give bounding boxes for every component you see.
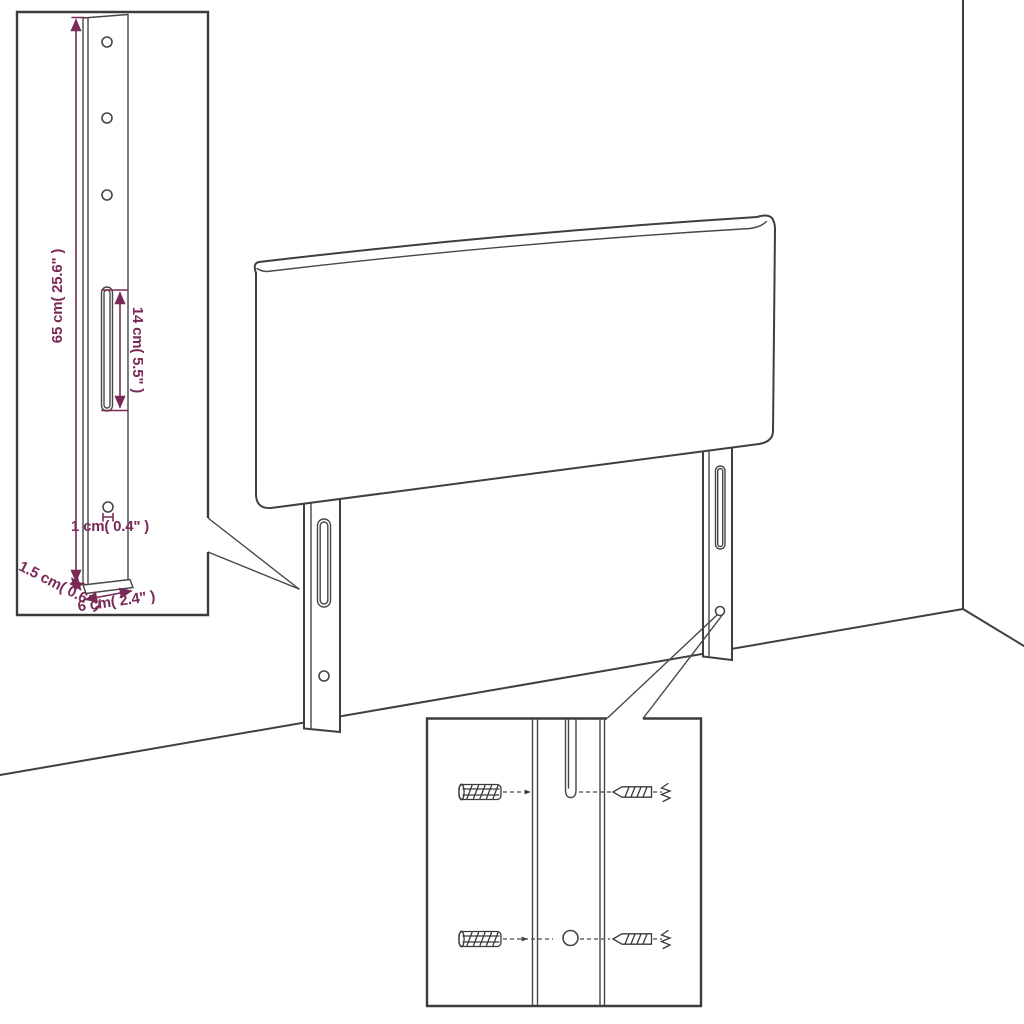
mounting-inset-frame xyxy=(427,719,701,1007)
strip-hole xyxy=(563,931,578,946)
headboard-panel xyxy=(255,216,775,509)
floor-line-right xyxy=(963,609,1024,646)
mounting-detail-inset xyxy=(427,719,701,1007)
diagram-canvas: 65 cm( 25.6" ) 14 cm( 5.5" ) 1 cm( 0.4" … xyxy=(0,0,1024,1024)
headboard-right-leg xyxy=(703,430,732,660)
headboard-left-leg xyxy=(304,480,340,732)
bracket-hole-3 xyxy=(102,190,112,200)
callout-left-inset xyxy=(208,518,299,589)
headboard-diagram: 65 cm( 25.6" ) 14 cm( 5.5" ) 1 cm( 0.4" … xyxy=(0,0,1024,1024)
dimension-hole-label: 1 cm( 0.4" ) xyxy=(71,518,149,535)
headboard-outline xyxy=(255,216,775,509)
dimension-slot-label: 14 cm( 5.5" ) xyxy=(129,307,146,393)
right-leg-hole xyxy=(716,607,725,616)
callout-line-upper xyxy=(208,518,299,589)
dimension-height-label: 65 cm( 25.6" ) xyxy=(49,249,66,344)
left-leg-hole xyxy=(319,671,329,681)
leg-detail-inset: 65 cm( 25.6" ) 14 cm( 5.5" ) 1 cm( 0.4" … xyxy=(16,12,208,615)
bracket-hole-2 xyxy=(102,113,112,123)
callout-line-lower xyxy=(208,552,299,589)
bracket-hole-1 xyxy=(102,37,112,47)
callout-line-b xyxy=(643,616,722,719)
bracket-small-hole xyxy=(103,502,113,512)
